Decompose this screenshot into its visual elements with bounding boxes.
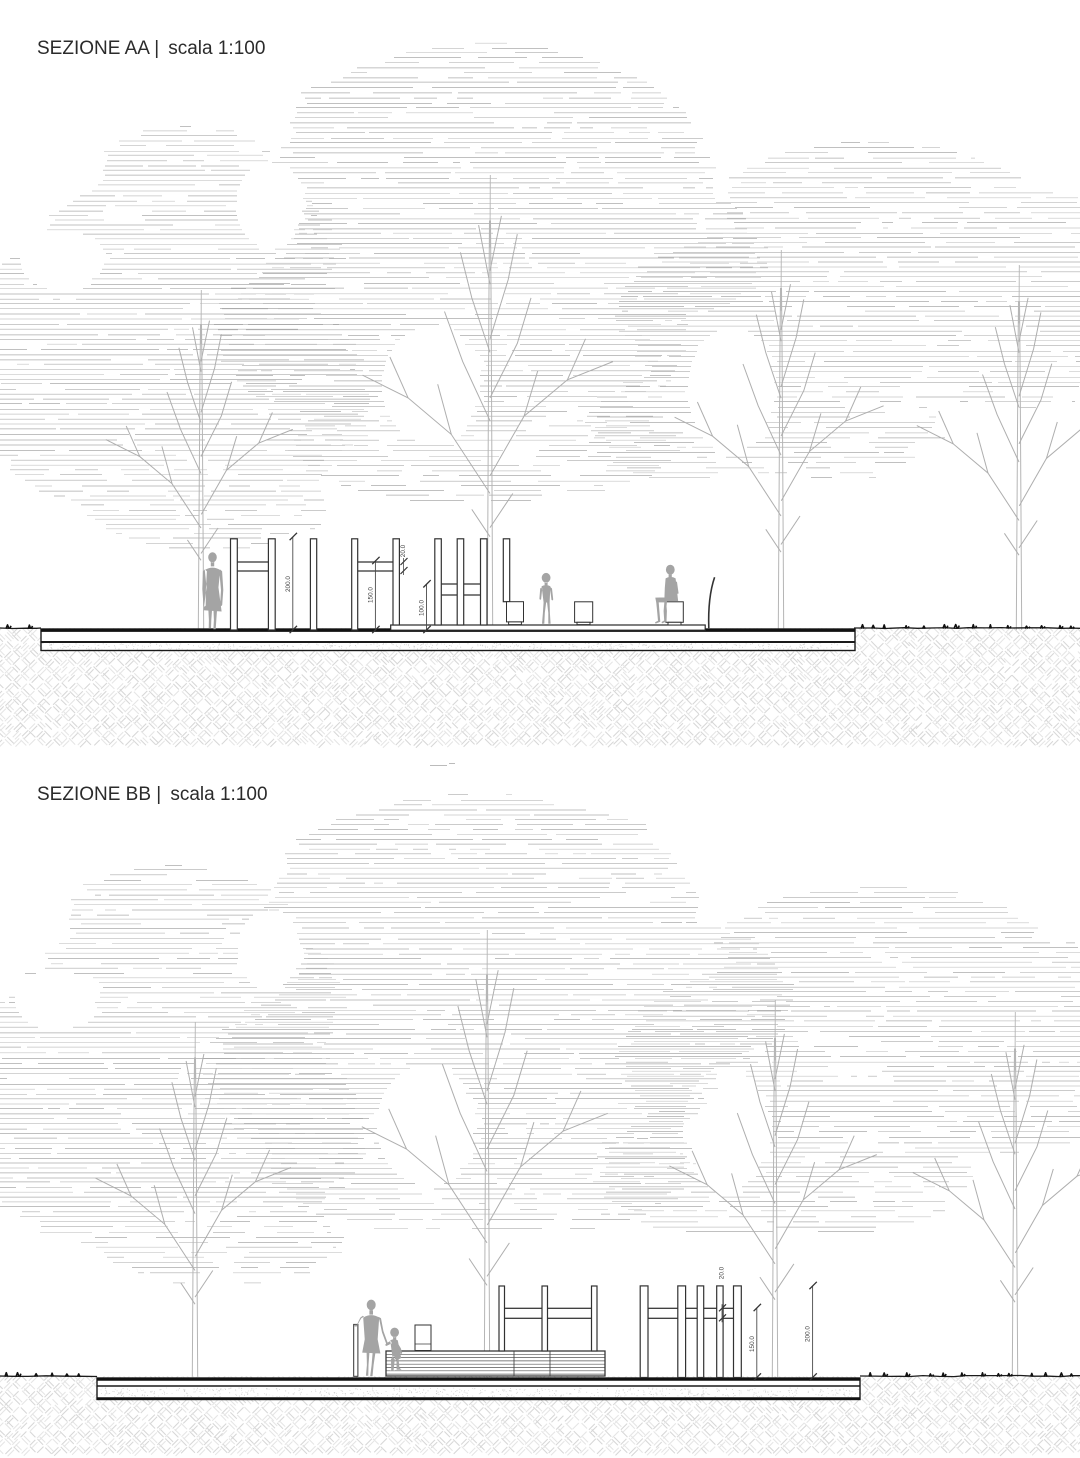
svg-text:20.0: 20.0 xyxy=(719,1266,726,1279)
svg-text:20.0: 20.0 xyxy=(400,544,407,557)
svg-text:SEZIONE AA | scala 1:100: SEZIONE AA | scala 1:100 xyxy=(37,38,265,59)
svg-text:200.0: 200.0 xyxy=(805,1326,812,1342)
svg-text:SEZIONE BB | scala 1:100: SEZIONE BB | scala 1:100 xyxy=(37,784,268,805)
svg-text:150.0: 150.0 xyxy=(749,1336,756,1352)
svg-text:100.0: 100.0 xyxy=(419,600,426,616)
svg-text:150.0: 150.0 xyxy=(367,587,374,603)
svg-text:200.0: 200.0 xyxy=(285,576,292,592)
